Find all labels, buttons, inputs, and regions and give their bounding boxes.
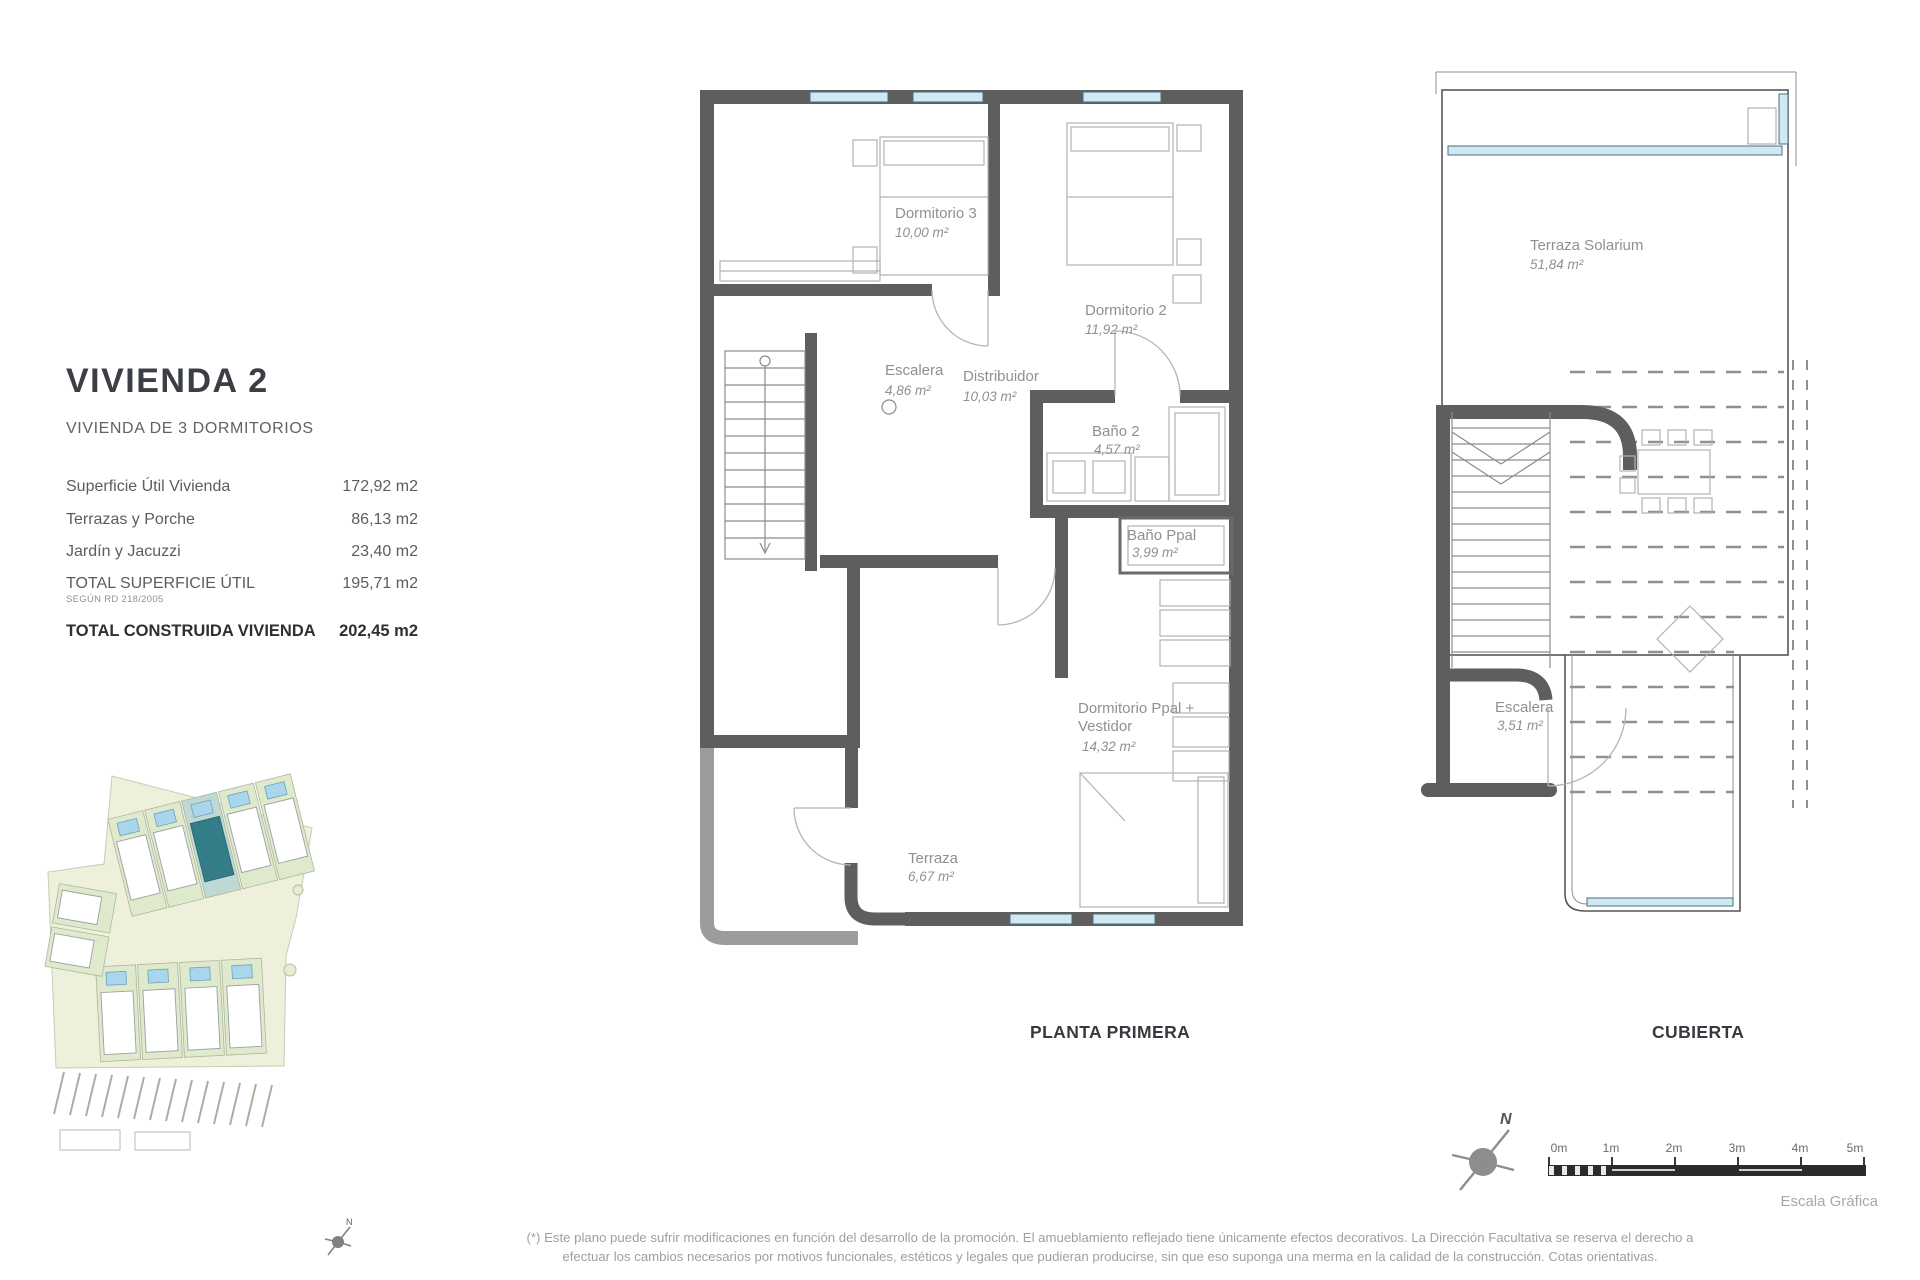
table-row: Jardín y Jacuzzi 23,40 m2	[66, 543, 418, 561]
room-area-escalera: 4,86 m²	[885, 383, 931, 398]
scale-bar: 0m 1m 2m 3m 4m 5m Escala Gráfica	[1548, 1141, 1870, 1216]
terrace-walls	[700, 735, 911, 938]
area-value: 23,40 m2	[351, 543, 418, 561]
area-label: Superficie Útil Vivienda	[66, 478, 230, 496]
scale-bar-caption: Escala Gráfica	[1780, 1193, 1878, 1210]
scale-tick-label: 5m	[1838, 1141, 1872, 1155]
scale-bar-ruler	[1548, 1165, 1866, 1176]
plan-caption-planta-primera: PLANTA PRIMERA	[1030, 1022, 1190, 1043]
room-label-terraza-solarium: Terraza Solarium	[1530, 237, 1643, 254]
scale-tick-label: 1m	[1594, 1141, 1628, 1155]
area-value: 195,71 m2	[342, 575, 418, 593]
room-label-dormitorio-2: Dormitorio 2	[1085, 302, 1167, 319]
room-area-bano-2: 4,57 m²	[1094, 442, 1140, 457]
table-row-total: TOTAL CONSTRUIDA VIVIENDA 202,45 m2	[66, 622, 418, 641]
room-area-bano-ppal: 3,99 m²	[1132, 545, 1178, 560]
area-label: TOTAL CONSTRUIDA VIVIENDA	[66, 622, 316, 641]
room-label-bano-2: Baño 2	[1092, 423, 1140, 440]
table-row: Superficie Útil Vivienda 172,92 m2	[66, 478, 418, 496]
page-title: VIVIENDA 2	[66, 362, 418, 401]
room-area-terraza-solarium: 51,84 m²	[1530, 257, 1584, 272]
room-area-dormitorio-ppal: 14,32 m²	[1082, 739, 1136, 754]
room-label-bano-ppal: Baño Ppal	[1127, 527, 1196, 544]
room-labels: Dormitorio 3 10,00 m² Dormitorio 2 11,92…	[885, 205, 1196, 884]
area-value: 172,92 m2	[342, 478, 418, 496]
site-driveway-hatching	[54, 1072, 272, 1127]
room-area-terraza: 6,67 m²	[908, 869, 954, 884]
area-label: TOTAL SUPERFICIE ÚTIL	[66, 575, 255, 593]
pergola-dashed-lines	[1570, 360, 1807, 808]
footnote: (*) Este plano puede sufrir modificacion…	[400, 1228, 1820, 1266]
table-row: Terrazas y Porche 86,13 m2	[66, 511, 418, 529]
room-label-distribuidor: Distribuidor	[963, 368, 1039, 385]
room-label-escalera: Escalera	[885, 362, 944, 379]
floor-plan-cubierta: Terraza Solarium 51,84 m² Escalera 3,51 …	[1390, 60, 1810, 930]
scale-tick-label: 2m	[1657, 1141, 1691, 1155]
plan-caption-cubierta: CUBIERTA	[1652, 1022, 1744, 1043]
footnote-line-1: (*) Este plano puede sufrir modificacion…	[400, 1228, 1820, 1247]
room-label-vestidor: Vestidor	[1078, 718, 1132, 735]
stair-core	[1428, 405, 1630, 797]
mini-compass-icon: N	[318, 1212, 364, 1268]
area-label: Terrazas y Porche	[66, 511, 195, 529]
room-area-distribuidor: 10,03 m²	[963, 389, 1017, 404]
scale-tick-label: 4m	[1783, 1141, 1817, 1155]
floor-plan-planta-primera: Dormitorio 3 10,00 m² Dormitorio 2 11,92…	[695, 85, 1250, 965]
scale-tick-label: 0m	[1542, 1141, 1576, 1155]
room-label-escalera-cubierta: Escalera	[1495, 699, 1554, 716]
mini-north-label: N	[346, 1217, 353, 1227]
area-value: 86,13 m2	[351, 511, 418, 529]
area-note: SEGÚN RD 218/2005	[66, 594, 164, 605]
roof-furniture	[1620, 108, 1776, 672]
site-plan-map	[40, 770, 370, 1170]
room-labels: Terraza Solarium 51,84 m² Escalera 3,51 …	[1495, 237, 1643, 733]
room-area-escalera-cubierta: 3,51 m²	[1497, 718, 1543, 733]
footnote-line-2: efectuar los cambios necesarios por moti…	[400, 1247, 1820, 1266]
north-label: N	[1500, 1111, 1512, 1128]
room-area-dormitorio-3: 10,00 m²	[895, 225, 949, 240]
room-label-terraza: Terraza	[908, 850, 959, 867]
page-subtitle: VIVIENDA DE 3 DORMITORIOS	[66, 420, 314, 438]
area-label: Jardín y Jacuzzi	[66, 543, 181, 561]
area-value: 202,45 m2	[339, 622, 418, 641]
room-area-dormitorio-2: 11,92 m²	[1085, 322, 1138, 337]
room-label-dormitorio-3: Dormitorio 3	[895, 205, 977, 222]
info-panel: VIVIENDA 2 VIVIENDA DE 3 DORMITORIOS Sup…	[66, 362, 418, 401]
north-compass-icon: N	[1440, 1098, 1530, 1203]
table-row: TOTAL SUPERFICIE ÚTIL 195,71 m2	[66, 575, 418, 593]
room-label-dormitorio-ppal: Dormitorio Ppal +	[1078, 700, 1195, 717]
scale-tick-label: 3m	[1720, 1141, 1754, 1155]
